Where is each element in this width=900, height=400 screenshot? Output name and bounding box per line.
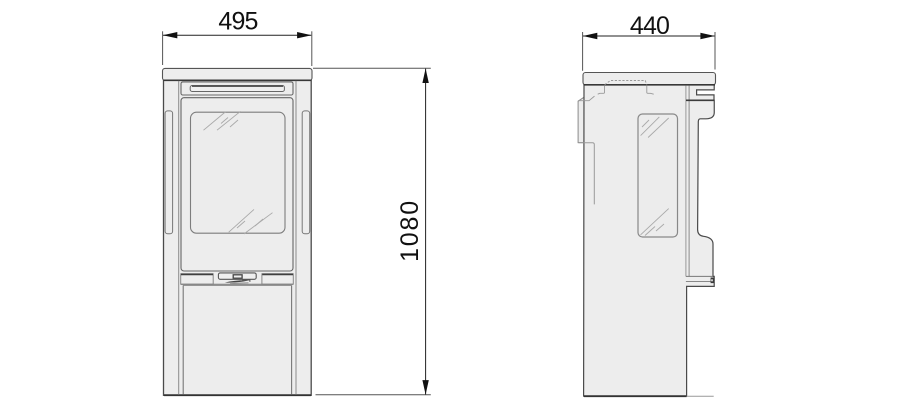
svg-text:495: 495 — [218, 8, 257, 36]
svg-text:1080: 1080 — [396, 199, 424, 262]
